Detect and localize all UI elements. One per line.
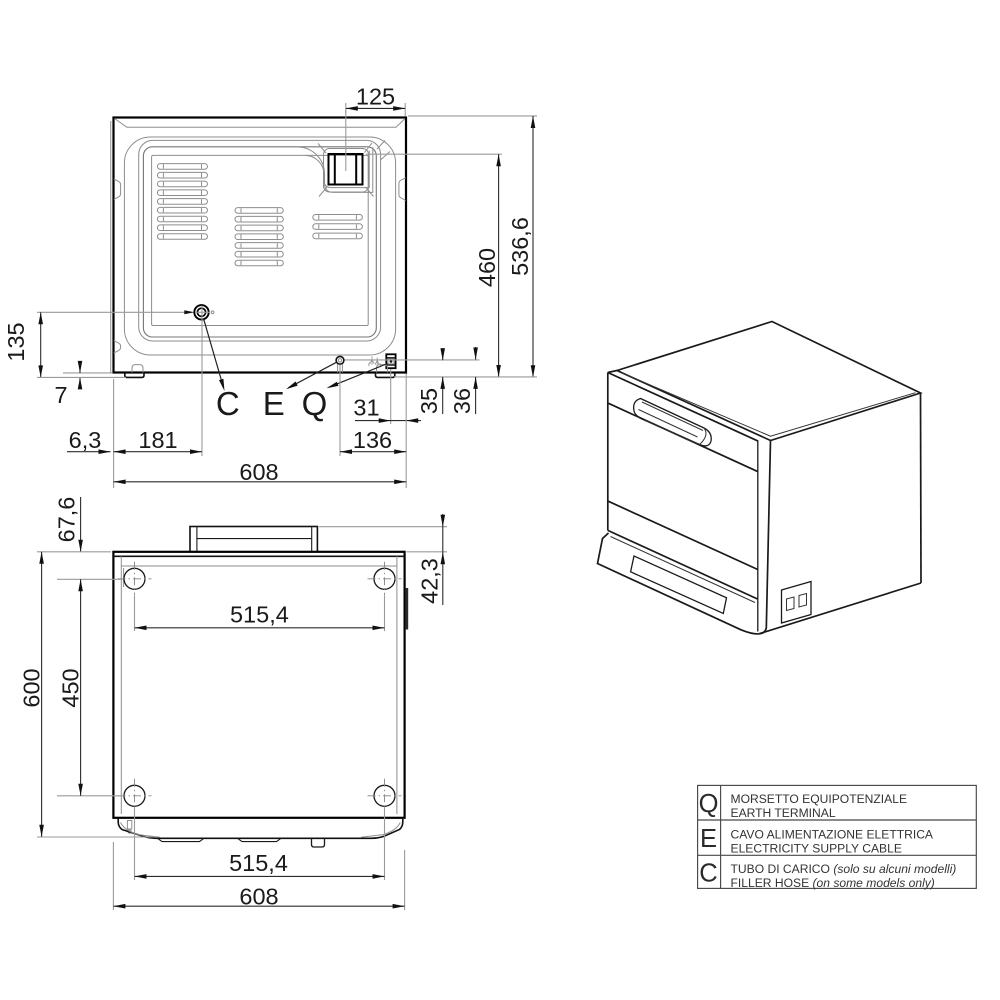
svg-text:600: 600 (19, 668, 45, 707)
svg-text:C: C (216, 385, 240, 422)
svg-text:6,3: 6,3 (69, 427, 102, 453)
svg-text:460: 460 (474, 248, 500, 287)
svg-text:TUBO DI CARICO (solo su alcuni: TUBO DI CARICO (solo su alcuni modelli) (731, 862, 957, 876)
svg-text:135: 135 (3, 322, 29, 361)
svg-text:E: E (700, 825, 717, 853)
svg-text:MORSETTO EQUIPOTENZIALE: MORSETTO EQUIPOTENZIALE (731, 792, 908, 806)
svg-text:515,4: 515,4 (229, 850, 288, 876)
svg-text:136: 136 (353, 427, 392, 453)
svg-text:E: E (263, 385, 285, 422)
svg-text:181: 181 (138, 427, 177, 453)
svg-text:Q: Q (302, 385, 328, 422)
svg-text:7: 7 (54, 382, 67, 408)
svg-text:67,6: 67,6 (54, 497, 80, 543)
svg-text:CAVO ALIMENTAZIONE ELETTRICA: CAVO ALIMENTAZIONE ELETTRICA (731, 828, 934, 842)
svg-text:608: 608 (239, 884, 278, 910)
svg-text:35: 35 (416, 388, 442, 414)
svg-text:ELECTRICITY SUPPLY CABLE: ELECTRICITY SUPPLY CABLE (731, 842, 902, 856)
svg-text:FILLER HOSE (on some models on: FILLER HOSE (on some models only) (731, 876, 935, 890)
svg-text:536,6: 536,6 (507, 217, 533, 276)
svg-text:C: C (699, 860, 717, 888)
svg-text:450: 450 (58, 668, 84, 707)
svg-text:EARTH TERMINAL: EARTH TERMINAL (731, 806, 836, 820)
svg-text:515,4: 515,4 (230, 602, 289, 628)
svg-text:608: 608 (239, 459, 278, 485)
svg-text:36: 36 (449, 388, 475, 414)
svg-text:125: 125 (356, 84, 395, 110)
svg-text:42,3: 42,3 (417, 558, 443, 604)
svg-text:Q: Q (699, 790, 719, 818)
svg-text:31: 31 (353, 395, 379, 421)
